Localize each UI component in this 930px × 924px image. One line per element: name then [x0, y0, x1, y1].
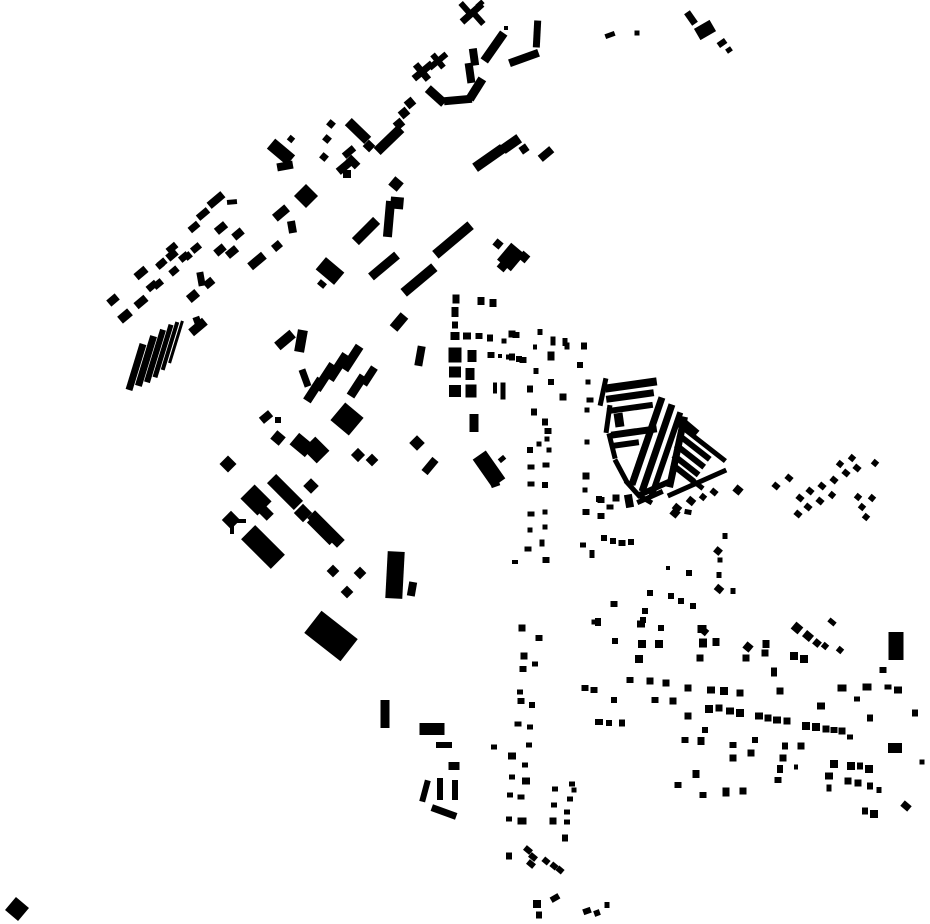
- building-footprint: [604, 31, 615, 39]
- building-footprint: [775, 777, 782, 783]
- building-footprint: [5, 897, 29, 921]
- building-footprint: [388, 176, 403, 191]
- building-footprint: [858, 503, 866, 511]
- building-footprint: [777, 688, 784, 695]
- building-footprint: [793, 509, 802, 518]
- building-footprint: [272, 204, 290, 221]
- building-footprint: [506, 853, 512, 860]
- building-footprint: [540, 540, 545, 547]
- building-footprint: [390, 312, 409, 331]
- building-footprint: [512, 560, 518, 564]
- building-footprint: [317, 279, 327, 289]
- building-footprint: [606, 720, 612, 726]
- building-footprint: [610, 538, 616, 544]
- building-footprint: [551, 803, 557, 808]
- building-footprint: [230, 526, 234, 534]
- building-footprint: [552, 787, 558, 792]
- building-footprint: [342, 145, 356, 159]
- building-footprint: [815, 496, 824, 505]
- building-footprint: [488, 352, 495, 358]
- building-footprint: [847, 735, 853, 740]
- building-footprint: [560, 394, 567, 401]
- building-footprint: [655, 640, 663, 648]
- building-footprint: [481, 30, 508, 63]
- building-footprint: [765, 715, 772, 722]
- building-footprint: [871, 459, 879, 467]
- building-footprint: [528, 482, 535, 487]
- building-footprint: [542, 482, 548, 488]
- building-footprint: [590, 550, 595, 558]
- building-footprint: [647, 590, 653, 596]
- building-footprint: [133, 266, 148, 280]
- building-footprint: [829, 475, 838, 484]
- building-footprint: [586, 380, 591, 385]
- building-footprint: [698, 625, 707, 633]
- building-footprint: [466, 385, 477, 398]
- building-footprint: [830, 760, 838, 768]
- building-footprint: [527, 725, 533, 730]
- building-footprint: [354, 567, 367, 580]
- building-footprint: [509, 354, 515, 361]
- building-footprint: [368, 252, 400, 281]
- map-canvas: [0, 0, 930, 924]
- building-footprint: [327, 565, 340, 578]
- building-footprint: [619, 720, 625, 727]
- building-footprint: [304, 611, 357, 661]
- building-footprint: [867, 783, 873, 790]
- building-footprint: [492, 238, 503, 249]
- building-footprint: [740, 788, 747, 795]
- building-footprint: [225, 245, 239, 259]
- building-footprint: [528, 512, 535, 517]
- building-footprint: [583, 509, 590, 515]
- building-footprint: [817, 703, 825, 710]
- building-footprint: [419, 780, 430, 803]
- building-footprint: [637, 621, 645, 628]
- building-footprint: [702, 727, 708, 733]
- building-footprint: [611, 697, 617, 703]
- building-footprint: [827, 785, 832, 792]
- building-footprint: [713, 546, 723, 556]
- building-footprint: [449, 762, 460, 770]
- building-footprint: [545, 428, 552, 434]
- building-footprint: [693, 770, 700, 778]
- building-footprint: [528, 465, 535, 470]
- building-footprint: [537, 442, 542, 447]
- building-footprint: [525, 547, 532, 552]
- building-footprint: [730, 742, 737, 748]
- building-footprint: [771, 481, 780, 490]
- building-footprint: [351, 448, 365, 462]
- building-footprint: [823, 726, 830, 733]
- building-footprint: [567, 797, 573, 802]
- building-footprint: [742, 641, 753, 652]
- building-footprint: [543, 557, 550, 563]
- building-footprint: [400, 263, 437, 296]
- building-footprint: [686, 496, 697, 507]
- building-footprint: [784, 473, 793, 482]
- building-footprint: [920, 760, 925, 765]
- building-footprint: [752, 737, 758, 743]
- building-footprint: [326, 119, 336, 129]
- building-footprint: [888, 743, 902, 753]
- building-footprint: [287, 220, 297, 233]
- building-footprint: [698, 737, 705, 745]
- building-footprint: [583, 488, 588, 493]
- building-footprint: [491, 745, 497, 750]
- building-footprint: [465, 63, 476, 84]
- building-footprint: [607, 402, 653, 414]
- building-footprint: [635, 655, 643, 663]
- building-footprint: [713, 638, 720, 646]
- building-footprint: [541, 856, 550, 865]
- building-footprint: [716, 705, 723, 712]
- building-footprint: [723, 788, 730, 797]
- building-footprint: [777, 765, 783, 773]
- building-footprint: [562, 835, 568, 842]
- building-footprint: [532, 662, 538, 667]
- building-footprint: [449, 367, 461, 378]
- building-footprint: [390, 196, 404, 209]
- building-footprint: [468, 350, 477, 362]
- building-footprint: [498, 455, 507, 463]
- building-footprint: [501, 383, 506, 400]
- building-footprint: [106, 293, 120, 306]
- building-footprint: [425, 85, 447, 106]
- building-footprint: [877, 787, 882, 793]
- building-footprint: [585, 440, 590, 445]
- building-footprint: [841, 468, 850, 477]
- building-footprint: [186, 289, 200, 303]
- building-footprint: [694, 20, 716, 40]
- building-footprint: [231, 227, 245, 240]
- building-footprint: [828, 491, 836, 499]
- building-footprint: [581, 343, 587, 350]
- building-footprint: [294, 329, 308, 352]
- building-footprint: [798, 743, 805, 750]
- building-footprint: [717, 38, 728, 48]
- building-footprint: [533, 20, 541, 47]
- building-footprint: [227, 199, 237, 205]
- building-footprint: [795, 493, 804, 502]
- building-footprint: [894, 687, 902, 694]
- building-footprint: [827, 618, 836, 627]
- building-footprint: [592, 620, 599, 625]
- building-footprint: [682, 737, 689, 743]
- building-footprint: [271, 240, 283, 252]
- building-footprint: [276, 161, 293, 172]
- building-footprint: [259, 410, 273, 424]
- building-footprint: [432, 221, 474, 258]
- building-footprint: [502, 339, 507, 344]
- building-footprint: [550, 818, 557, 825]
- building-footprint: [624, 494, 634, 508]
- building-footprint: [638, 640, 646, 648]
- building-footprint: [743, 655, 750, 662]
- building-footprint: [569, 782, 575, 787]
- building-footprint: [628, 539, 634, 545]
- building-footprint: [684, 10, 698, 25]
- building-footprint: [737, 690, 744, 697]
- building-footprint: [700, 792, 707, 798]
- building-footprint: [582, 907, 592, 915]
- building-footprint: [299, 368, 312, 387]
- building-footprint: [652, 697, 659, 703]
- building-footprint: [527, 386, 533, 393]
- building-footprint: [725, 46, 733, 54]
- building-footprint: [538, 146, 555, 162]
- building-footprint: [345, 118, 371, 144]
- building-footprint: [736, 709, 744, 717]
- building-footprint: [381, 700, 390, 728]
- building-footprint: [404, 97, 417, 110]
- building-footprint: [452, 307, 459, 317]
- building-footprint: [791, 622, 804, 635]
- building-footprint: [476, 333, 483, 339]
- building-footprint: [303, 478, 319, 494]
- building-footprint: [794, 765, 798, 770]
- building-footprint: [533, 900, 541, 908]
- building-footprint: [247, 252, 267, 270]
- building-footprint: [613, 495, 620, 502]
- building-footprint: [726, 708, 734, 715]
- building-footprint: [912, 710, 918, 717]
- building-footprint: [509, 331, 516, 338]
- building-footprint: [591, 687, 598, 693]
- building-footprint: [773, 717, 781, 724]
- building-footprint: [865, 765, 873, 773]
- building-footprint: [528, 528, 533, 533]
- building-footprint: [627, 677, 634, 683]
- building-footprint: [686, 570, 692, 576]
- building-footprint: [564, 820, 570, 825]
- building-footprint: [526, 743, 532, 748]
- building-footprint: [536, 912, 542, 919]
- building-footprint: [670, 698, 677, 705]
- building-footprint: [509, 775, 515, 780]
- building-footprint: [493, 383, 497, 394]
- building-footprint: [780, 755, 787, 762]
- building-footprint: [613, 439, 640, 449]
- building-footprint: [900, 800, 911, 811]
- building-footprint: [545, 437, 550, 442]
- building-footprint: [675, 782, 682, 788]
- building-footprint: [802, 722, 810, 730]
- building-footprint: [452, 322, 458, 329]
- building-footprint: [598, 513, 605, 519]
- building-footprint: [658, 625, 664, 631]
- building-footprint: [564, 810, 570, 815]
- building-footprint: [684, 509, 692, 515]
- building-footprint: [685, 713, 692, 720]
- building-footprint: [857, 763, 863, 770]
- building-footprint: [168, 265, 179, 276]
- building-footprint: [275, 417, 281, 423]
- building-footprint: [407, 581, 417, 596]
- building-footprint: [507, 793, 513, 798]
- building-footprint: [270, 430, 285, 445]
- building-footprint: [870, 810, 878, 818]
- building-footprint: [267, 474, 303, 510]
- building-footprint: [831, 727, 838, 733]
- building-footprint: [732, 484, 743, 495]
- building-footprint: [478, 297, 485, 305]
- building-footprint: [593, 909, 601, 917]
- building-footprint: [763, 640, 770, 648]
- building-footprint: [203, 277, 216, 290]
- building-footprint: [117, 308, 133, 323]
- building-footprint: [595, 719, 603, 725]
- building-footprint: [518, 698, 525, 704]
- building-footprint: [307, 510, 344, 547]
- building-footprint: [518, 818, 527, 825]
- building-footprint: [543, 510, 548, 515]
- building-footprint: [466, 368, 475, 380]
- building-footprint: [472, 144, 506, 172]
- building-footprint: [642, 608, 648, 614]
- building-footprint: [409, 435, 425, 451]
- building-footprint: [847, 762, 855, 770]
- building-footprint: [612, 638, 618, 644]
- building-footprint: [421, 457, 438, 475]
- building-footprint: [585, 408, 590, 413]
- building-footprint: [825, 773, 833, 780]
- building-footprint: [515, 722, 522, 727]
- building-footprint: [452, 780, 458, 800]
- building-footprint: [506, 817, 512, 822]
- building-footprint: [519, 625, 526, 632]
- building-footprint: [790, 652, 798, 660]
- building-footprint: [717, 572, 722, 578]
- building-footprint: [572, 788, 577, 793]
- building-footprint: [619, 540, 626, 546]
- building-footprint: [385, 551, 404, 599]
- building-footprint: [520, 666, 527, 672]
- building-footprint: [366, 454, 379, 467]
- building-footprint: [449, 348, 462, 363]
- building-footprint: [374, 125, 405, 155]
- building-footprint: [762, 650, 769, 657]
- building-footprint: [538, 329, 543, 335]
- building-footprint: [319, 152, 329, 162]
- building-footprint: [720, 687, 728, 695]
- building-footprint: [885, 685, 892, 690]
- building-footprint: [520, 357, 527, 363]
- building-footprint: [220, 456, 237, 473]
- building-footprint: [213, 243, 227, 256]
- building-footprint: [862, 513, 870, 521]
- building-footprint: [812, 723, 820, 731]
- building-footprint: [322, 134, 332, 144]
- building-footprint: [685, 685, 692, 692]
- building-footprint: [352, 217, 380, 245]
- building-footprint: [817, 481, 826, 490]
- building-footprint: [699, 639, 707, 648]
- building-footprint: [274, 330, 296, 351]
- building-footprint: [437, 778, 443, 800]
- building-footprint: [697, 655, 704, 662]
- building-footprint: [490, 299, 497, 307]
- building-footprint: [508, 753, 516, 760]
- building-footprint: [536, 635, 543, 641]
- building-footprint: [730, 755, 737, 762]
- building-footprint: [802, 630, 814, 642]
- building-footprint: [718, 558, 723, 563]
- building-footprint: [531, 409, 537, 416]
- building-footprint: [848, 454, 856, 462]
- building-footprint: [522, 778, 530, 785]
- building-footprint: [821, 642, 829, 650]
- building-footprint: [529, 702, 535, 708]
- building-footprint: [453, 295, 460, 304]
- building-footprint: [784, 718, 791, 725]
- building-footprint: [709, 487, 718, 496]
- building-footprint: [868, 494, 876, 502]
- building-footprint: [196, 207, 210, 221]
- building-footprint: [705, 705, 713, 713]
- building-footprint: [605, 902, 610, 908]
- building-footprint: [241, 525, 285, 569]
- building-footprint: [463, 333, 471, 340]
- building-footprint: [699, 493, 707, 501]
- building-footprint: [398, 107, 411, 120]
- building-footprint: [547, 448, 552, 453]
- building-footprint: [436, 742, 452, 748]
- building-footprint: [517, 690, 523, 695]
- building-footprint: [731, 588, 736, 594]
- building-footprint: [714, 584, 725, 595]
- building-footprint: [580, 543, 586, 548]
- building-footprint: [614, 412, 625, 427]
- building-footprint: [533, 345, 537, 350]
- building-footprint: [287, 135, 295, 143]
- building-footprint: [601, 535, 607, 541]
- building-footprint: [748, 750, 755, 757]
- building-footprint: [596, 496, 602, 502]
- building-footprint: [133, 295, 148, 309]
- building-footprint: [663, 680, 670, 687]
- building-footprint: [543, 463, 550, 468]
- building-footprint-map: [0, 0, 930, 924]
- building-footprint: [854, 697, 860, 702]
- building-footprint: [527, 447, 533, 453]
- building-footprint: [587, 398, 594, 403]
- building-footprint: [836, 646, 844, 654]
- building-footprint: [805, 486, 814, 495]
- building-footprint: [414, 345, 425, 366]
- building-footprint: [782, 743, 788, 750]
- building-footprint: [565, 343, 570, 350]
- building-footprint: [839, 728, 846, 735]
- building-footprint: [518, 143, 529, 154]
- building-footprint: [548, 352, 555, 361]
- building-footprint: [343, 170, 351, 178]
- building-footprint: [836, 460, 844, 468]
- building-footprint: [294, 184, 318, 208]
- building-footprint: [707, 687, 715, 694]
- building-footprint: [852, 463, 861, 472]
- building-footprint: [504, 26, 508, 30]
- building-footprint: [845, 778, 852, 785]
- building-footprint: [867, 715, 873, 722]
- building-footprint: [854, 493, 862, 501]
- building-footprint: [889, 632, 904, 660]
- building-footprint: [666, 566, 670, 570]
- building-footprint: [518, 795, 525, 800]
- building-footprint: [522, 763, 528, 768]
- building-footprint: [800, 655, 808, 663]
- building-footprint: [534, 368, 539, 374]
